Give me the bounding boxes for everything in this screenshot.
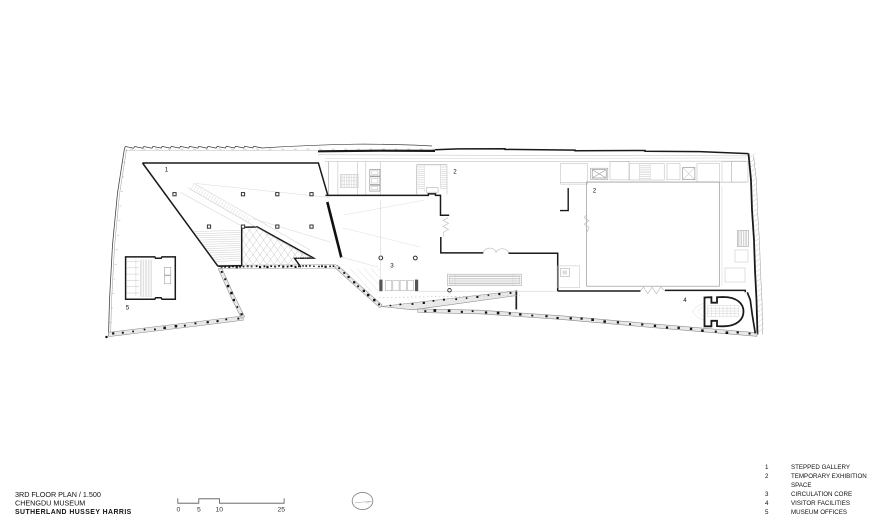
svg-text:1: 1 [165,166,169,173]
svg-text:VISITOR FACILITIES: VISITOR FACILITIES [791,500,850,507]
svg-text:2: 2 [593,188,597,195]
svg-text:5: 5 [765,509,769,516]
svg-text:3: 3 [390,262,394,269]
svg-text:4: 4 [683,297,687,304]
svg-text:CHENGDU MUSEUM: CHENGDU MUSEUM [15,499,85,508]
svg-text:1: 1 [765,464,769,471]
svg-text:5: 5 [126,304,130,311]
svg-text:25: 25 [278,507,286,514]
svg-text:TEMPORARY EXHIBITION: TEMPORARY EXHIBITION [791,473,867,480]
svg-text:STEPPED GALLERY: STEPPED GALLERY [791,464,850,471]
svg-text:SUTHERLAND HUSSEY HARRIS: SUTHERLAND HUSSEY HARRIS [15,509,132,516]
svg-text:2: 2 [453,169,457,176]
svg-text:SPACE: SPACE [791,482,812,489]
svg-text:CIRCULATION CORE: CIRCULATION CORE [791,491,852,498]
svg-text:2: 2 [765,473,769,480]
svg-text:MUSEUM OFFICES: MUSEUM OFFICES [791,509,847,516]
svg-text:0: 0 [177,507,181,514]
svg-text:3: 3 [765,491,769,498]
svg-text:4: 4 [765,500,769,507]
svg-text:10: 10 [216,507,224,514]
svg-text:5: 5 [197,507,201,514]
